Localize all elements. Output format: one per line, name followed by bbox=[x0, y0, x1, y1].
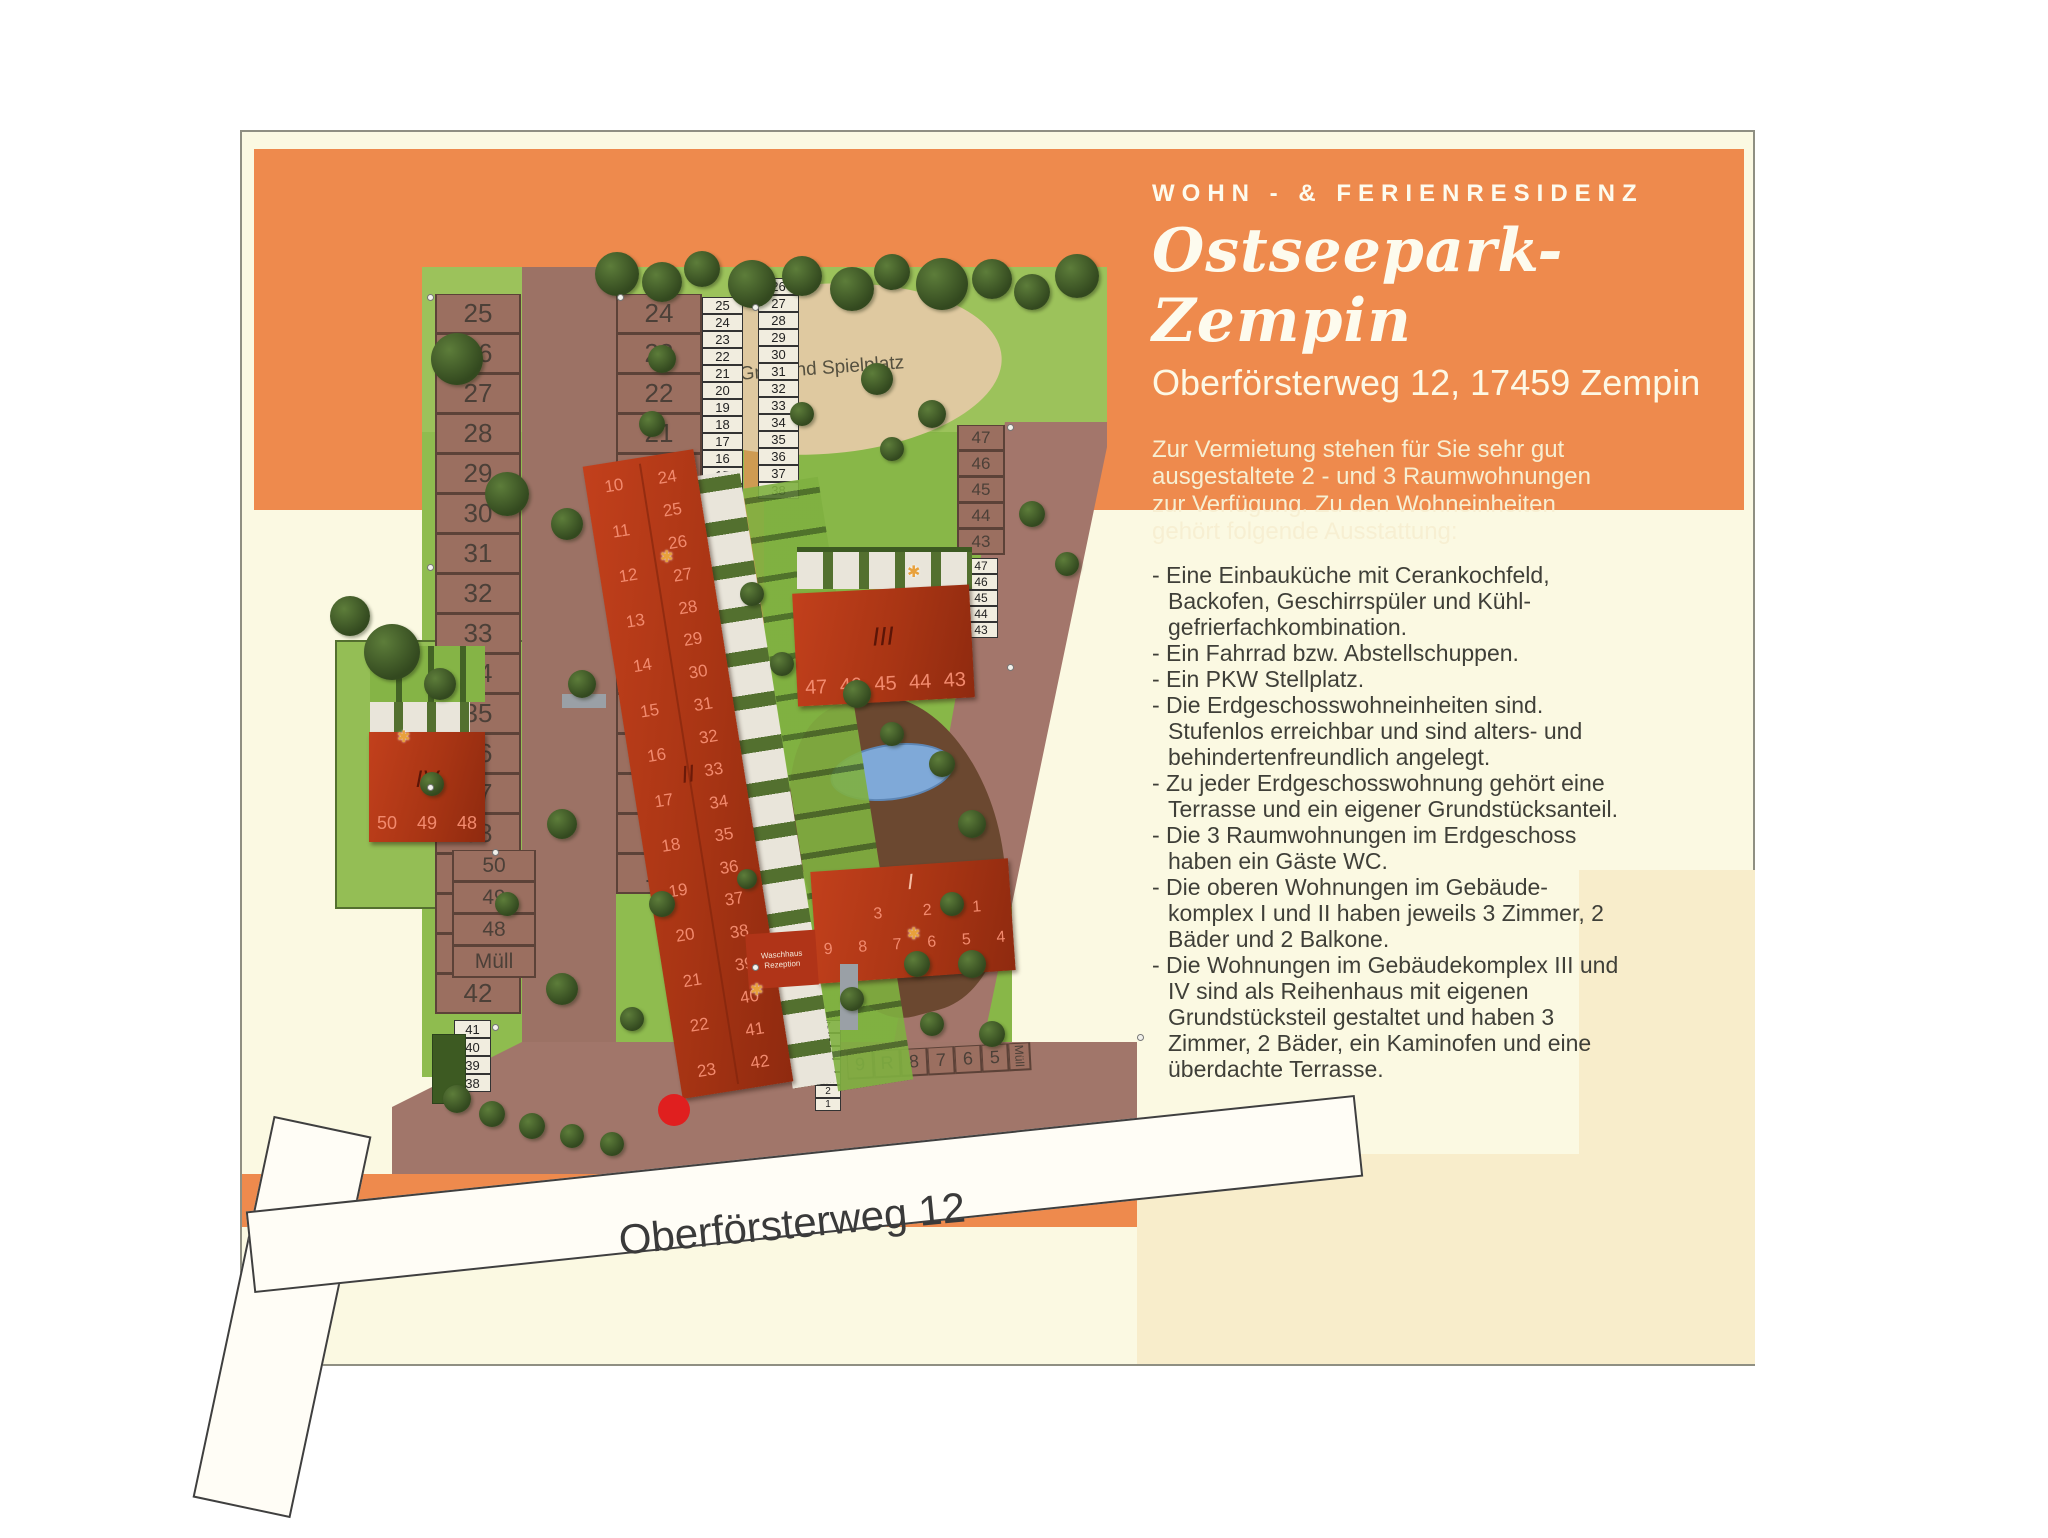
lamp-post-icon bbox=[1137, 1034, 1144, 1041]
unit-number: 35 bbox=[713, 823, 735, 846]
tree-icon bbox=[782, 256, 822, 296]
tree-icon bbox=[958, 950, 986, 978]
header: WOHN - & FERIENRESIDENZ Ostseepark-Zempi… bbox=[1152, 180, 1712, 545]
lamp-post-icon bbox=[427, 294, 434, 301]
feature-item: - Ein PKW Stellplatz. bbox=[1152, 666, 1632, 692]
lamp-post-icon bbox=[492, 849, 499, 856]
tree-icon bbox=[546, 973, 578, 1005]
parking-space: 42 bbox=[435, 974, 521, 1014]
unit-number: 20 bbox=[674, 924, 696, 947]
unit-number: 30 bbox=[687, 661, 709, 684]
parking-space: 22 bbox=[616, 374, 702, 414]
tree-icon bbox=[830, 267, 874, 311]
flower-icon: ✱ bbox=[907, 924, 920, 944]
unit-number: 1 bbox=[972, 898, 982, 917]
number-tag: 20 bbox=[702, 382, 743, 399]
parking-space: 46 bbox=[957, 451, 1005, 477]
header-address: Oberförsterweg 12, 17459 Zempin bbox=[1152, 362, 1712, 404]
header-kicker: WOHN - & FERIENRESIDENZ bbox=[1152, 180, 1712, 208]
tree-icon bbox=[443, 1085, 471, 1113]
tree-icon bbox=[918, 400, 946, 428]
lamp-post-icon bbox=[617, 294, 624, 301]
number-tag: 36 bbox=[758, 448, 799, 465]
unit-number: 42 bbox=[749, 1051, 771, 1074]
tree-icon bbox=[979, 1021, 1005, 1047]
number-tag: 18 bbox=[702, 416, 743, 433]
unit-number: 8 bbox=[858, 938, 868, 957]
tree-icon bbox=[840, 987, 864, 1011]
tree-icon bbox=[485, 472, 529, 516]
parking-space: 31 bbox=[435, 534, 521, 574]
tree-icon bbox=[770, 652, 794, 676]
tree-icon bbox=[1055, 552, 1079, 576]
tree-icon bbox=[642, 262, 682, 302]
unit-number: 3 bbox=[873, 905, 883, 924]
number-tag: 19 bbox=[702, 399, 743, 416]
unit-number: 44 bbox=[908, 671, 931, 695]
unit-number: 29 bbox=[682, 629, 704, 652]
tree-icon bbox=[790, 402, 814, 426]
parking-column-east: 4746454443 bbox=[957, 425, 1005, 555]
building-iii-label: III bbox=[794, 616, 972, 656]
lamp-post-icon bbox=[1007, 664, 1014, 671]
number-tag: 24 bbox=[702, 314, 743, 331]
unit-number: 22 bbox=[689, 1014, 711, 1037]
unit-number: 28 bbox=[677, 596, 699, 619]
parking-space: 25 bbox=[435, 294, 521, 334]
flower-icon: ✱ bbox=[397, 727, 410, 747]
feature-list: - Eine Einbauküche mit Cerankochfeld, Ba… bbox=[1152, 562, 1632, 1082]
tree-icon bbox=[431, 333, 483, 385]
tree-icon bbox=[916, 258, 968, 310]
parking-space: 45 bbox=[957, 477, 1005, 503]
parking-space: 32 bbox=[435, 574, 521, 614]
tree-icon bbox=[424, 668, 456, 700]
tree-icon bbox=[649, 891, 675, 917]
unit-number: 43 bbox=[943, 669, 966, 693]
number-tag: 23 bbox=[702, 331, 743, 348]
parking-space: 5 bbox=[981, 1043, 1009, 1072]
number-tag: 32 bbox=[758, 380, 799, 397]
number-tag: 21 bbox=[702, 365, 743, 382]
unit-number: 5 bbox=[961, 931, 971, 950]
page: WOHN - & FERIENRESIDENZ Ostseepark-Zempi… bbox=[0, 0, 2048, 1538]
number-tag: 17 bbox=[702, 433, 743, 450]
unit-number: 6 bbox=[927, 933, 937, 952]
tree-icon bbox=[684, 251, 720, 287]
waste-space: Müll bbox=[1008, 1042, 1031, 1071]
unit-number: 25 bbox=[662, 499, 684, 522]
lamp-post-icon bbox=[427, 564, 434, 571]
feature-item: - Ein Fahrrad bzw. Abstellschuppen. bbox=[1152, 640, 1632, 666]
tree-icon bbox=[479, 1101, 505, 1127]
unit-number: 15 bbox=[639, 700, 661, 723]
tree-icon bbox=[364, 624, 420, 680]
unit-number: 14 bbox=[632, 655, 654, 678]
tree-icon bbox=[595, 252, 639, 296]
unit-number: 13 bbox=[624, 610, 646, 633]
unit-number: 48 bbox=[457, 813, 477, 834]
tree-icon bbox=[551, 508, 583, 540]
unit-number: 41 bbox=[744, 1018, 766, 1041]
flower-icon: ✱ bbox=[660, 547, 673, 567]
unit-number: 45 bbox=[874, 672, 897, 696]
unit-number: 9 bbox=[823, 941, 833, 960]
tree-icon bbox=[740, 582, 764, 606]
unit-number: 12 bbox=[617, 565, 639, 588]
tree-icon bbox=[600, 1132, 624, 1156]
gardens-iii bbox=[797, 547, 972, 589]
tree-icon bbox=[920, 1012, 944, 1036]
feature-item: - Die Erdgeschosswohneinheiten sind. Stu… bbox=[1152, 692, 1632, 770]
lamp-post-icon bbox=[752, 304, 759, 311]
tree-icon bbox=[620, 1007, 644, 1031]
lamp-post-icon bbox=[752, 964, 759, 971]
unit-number: 50 bbox=[377, 813, 397, 834]
site-map: Grill- und Spielplatz 252627282930313233… bbox=[332, 264, 1152, 1176]
parking-space: 47 bbox=[957, 425, 1005, 451]
number-strip-2: 26272829303132333435363738 bbox=[758, 278, 799, 499]
tree-icon bbox=[495, 892, 519, 916]
parking-space: 48 bbox=[452, 914, 536, 946]
unit-number: 2 bbox=[922, 902, 932, 921]
unit-number: 4 bbox=[996, 929, 1006, 948]
location-marker bbox=[658, 1094, 690, 1126]
unit-number: 47 bbox=[805, 676, 828, 700]
tree-icon bbox=[330, 596, 370, 636]
unit-number: 34 bbox=[708, 791, 730, 814]
tree-icon bbox=[1055, 254, 1099, 298]
access-road bbox=[522, 267, 616, 1082]
intro-paragraph: Zur Vermietung stehen für Sie sehr gut a… bbox=[1152, 436, 1622, 545]
unit-number: 37 bbox=[723, 888, 745, 911]
flower-icon: ✱ bbox=[750, 980, 763, 1000]
parking-space: Müll bbox=[452, 946, 536, 978]
tree-icon bbox=[519, 1113, 545, 1139]
tree-icon bbox=[1014, 274, 1050, 310]
tree-icon bbox=[648, 345, 676, 373]
lamp-post-icon bbox=[427, 784, 434, 791]
tree-icon bbox=[728, 260, 776, 308]
number-tag: 22 bbox=[702, 348, 743, 365]
unit-number: 18 bbox=[660, 834, 682, 857]
number-tag: 31 bbox=[758, 363, 799, 380]
unit-number: 10 bbox=[603, 475, 625, 498]
unit-number: 7 bbox=[892, 936, 902, 955]
parking-space: 44 bbox=[957, 503, 1005, 529]
number-tag: 30 bbox=[758, 346, 799, 363]
unit-number: 21 bbox=[681, 969, 703, 992]
unit-number: 32 bbox=[698, 726, 720, 749]
number-tag: 29 bbox=[758, 329, 799, 346]
tree-icon bbox=[568, 670, 596, 698]
parking-space: 49 bbox=[452, 882, 536, 914]
feature-item: - Die 3 Raumwohnungen im Erdgeschoss hab… bbox=[1152, 822, 1632, 874]
tree-icon bbox=[639, 411, 665, 437]
tree-icon bbox=[958, 810, 986, 838]
flyer-panel: WOHN - & FERIENRESIDENZ Ostseepark-Zempi… bbox=[240, 130, 1755, 1366]
lamp-post-icon bbox=[1007, 424, 1014, 431]
tree-icon bbox=[843, 680, 871, 708]
street-side bbox=[193, 1116, 372, 1518]
parking-column-iv: 504948Müll bbox=[452, 850, 536, 978]
parking-space: 28 bbox=[435, 414, 521, 454]
tree-icon bbox=[547, 809, 577, 839]
feature-item: - Zu jeder Erdgeschosswohnung gehört ein… bbox=[1152, 770, 1632, 822]
tree-icon bbox=[737, 869, 757, 889]
tree-icon bbox=[880, 722, 904, 746]
tree-icon bbox=[1019, 501, 1045, 527]
feature-item: - Die oberen Wohnungen im Gebäude- kompl… bbox=[1152, 874, 1632, 952]
parking-space: 6 bbox=[954, 1045, 982, 1074]
feature-item: - Die Wohnungen im Gebäudekomplex III un… bbox=[1152, 952, 1632, 1082]
feature-item: - Eine Einbauküche mit Cerankochfeld, Ba… bbox=[1152, 562, 1632, 640]
terraces-iv bbox=[370, 702, 470, 734]
unit-number: 23 bbox=[696, 1059, 718, 1082]
number-tag: 1 bbox=[815, 1098, 841, 1111]
number-tag: 28 bbox=[758, 312, 799, 329]
tree-icon bbox=[874, 254, 910, 290]
tree-icon bbox=[560, 1124, 584, 1148]
unit-number: 49 bbox=[417, 813, 437, 834]
lamp-post-icon bbox=[492, 1024, 499, 1031]
unit-number: 11 bbox=[611, 520, 632, 543]
number-tag: 16 bbox=[702, 450, 743, 467]
tree-icon bbox=[861, 363, 893, 395]
number-tag: 35 bbox=[758, 431, 799, 448]
tree-icon bbox=[940, 892, 964, 916]
unit-number: 24 bbox=[656, 466, 678, 489]
building-iii: III 4746454443 bbox=[792, 584, 975, 706]
tree-icon bbox=[929, 751, 955, 777]
flower-icon: ✱ bbox=[907, 562, 920, 582]
page-title: Ostseepark-Zempin bbox=[1152, 216, 1712, 356]
unit-number: 27 bbox=[672, 564, 694, 587]
parking-space: 7 bbox=[927, 1046, 955, 1075]
tree-icon bbox=[972, 259, 1012, 299]
number-tag: 37 bbox=[758, 465, 799, 482]
tree-icon bbox=[904, 951, 930, 977]
tree-icon bbox=[880, 437, 904, 461]
unit-number: 31 bbox=[692, 694, 714, 717]
